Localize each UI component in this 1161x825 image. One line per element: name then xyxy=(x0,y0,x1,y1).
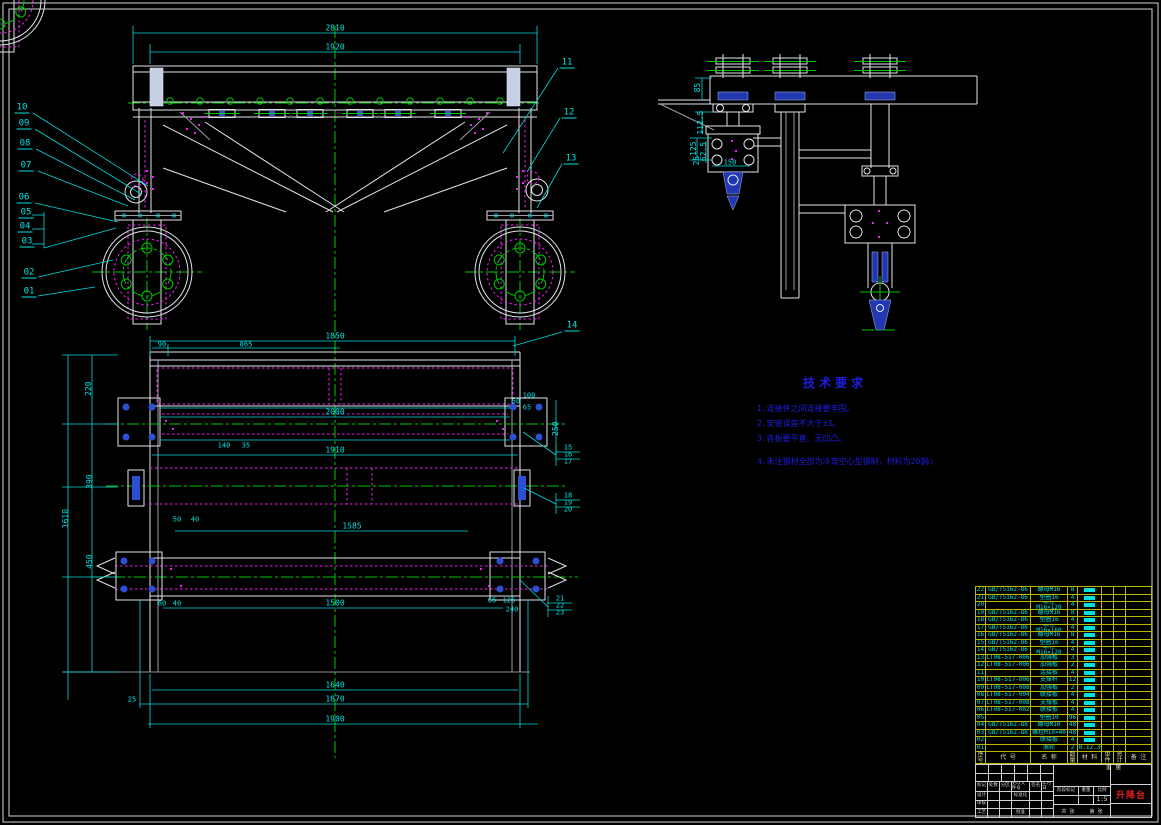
bom-cell-name: 螺栓M16×120 xyxy=(1031,602,1068,610)
bom-cell-code: LT08-517-004 xyxy=(986,692,1031,700)
bom-header-weight: 单件 总计 重 量 xyxy=(1102,752,1126,763)
dimension-pv_50r: 50 xyxy=(512,398,520,406)
bom-cell-code: GB/T5162-86 xyxy=(986,595,1031,603)
bom-cell-name: 垫圈16 xyxy=(1031,640,1068,648)
callout-co_13: 13 xyxy=(564,155,579,165)
bom-header-remark: 备 注 xyxy=(1126,752,1151,763)
bom-cell-unit xyxy=(1102,700,1114,708)
dimension-pv_100: 100 xyxy=(523,392,536,400)
title-block-middle: 阶段标记 重量 比例 1:5 共 张 第 张 xyxy=(1054,765,1111,817)
tb-standard-label: 标准化 xyxy=(1012,792,1030,800)
bom-cell-material xyxy=(1078,625,1102,633)
callout-co_08: 08 xyxy=(18,140,33,150)
bom-cell-material xyxy=(1078,632,1102,640)
bom-cell-name: 联接板 xyxy=(1031,737,1068,745)
bom-cell-no: 05 xyxy=(976,715,986,723)
callout-co_14: 14 xyxy=(565,322,580,332)
bom-row: 20螺栓M16×1204 xyxy=(976,602,1151,610)
bom-cell-no: 06 xyxy=(976,707,986,715)
bom-cell-code: GB/T5162-88 xyxy=(986,722,1031,730)
dimension-fv_dim_1920: 1920 xyxy=(325,44,344,52)
dimension-pv_65r: 65 xyxy=(488,597,496,605)
bom-cell-no: 09 xyxy=(976,685,986,693)
bom-cell-qty: 4 xyxy=(1068,692,1078,700)
bom-cell-material xyxy=(1078,670,1102,678)
tech-requirement-line: 4.未注钢材全部为冷弯空心型钢制，材料为20钢○ xyxy=(757,454,992,469)
dimension-pv_240: 240 xyxy=(506,606,519,614)
bom-cell-qty: 4 xyxy=(1068,625,1078,633)
bom-cell-qty: 8 xyxy=(1068,610,1078,618)
bom-cell-code: LT08-517-008 xyxy=(986,685,1031,693)
bom-cell-qty: 48 xyxy=(1068,722,1078,730)
material-highlight xyxy=(1084,633,1095,637)
bom-cell-no: 20 xyxy=(976,602,986,610)
bom-row: 06LT08-517-002联接板4 xyxy=(976,707,1151,715)
tech-requirement-line: 2.安装误差不大于±3。 xyxy=(757,416,992,431)
bom-cell-remark xyxy=(1126,730,1151,738)
bom-cell-qty: 4 xyxy=(1068,640,1078,648)
tb-drawing-number-cell xyxy=(1111,804,1151,817)
bom-cell-total xyxy=(1114,640,1126,648)
tb-company-cell xyxy=(1111,765,1151,785)
bom-cell-qty: 4 xyxy=(1068,602,1078,610)
bom-cell-code: LT08-517-008 xyxy=(986,700,1031,708)
dimension-pv_1610: 1610 xyxy=(62,509,70,528)
bom-cell-no: 11 xyxy=(976,670,986,678)
bom-cell-total xyxy=(1114,700,1126,708)
plan-view xyxy=(62,332,580,758)
bom-cell-total xyxy=(1114,610,1126,618)
dimension-pv_1910: 1910 xyxy=(325,447,344,455)
tb-drawing-title: 升降台 xyxy=(1111,785,1151,804)
bom-row: 04GB/T5162-88螺母M1048 xyxy=(976,722,1151,730)
callout-co_01: 01 xyxy=(22,288,37,298)
bom-cell-total xyxy=(1114,730,1126,738)
dimension-sv_150: 150 xyxy=(724,159,737,167)
bom-cell-unit xyxy=(1102,587,1114,595)
bom-cell-code: GB/T5162-86 xyxy=(986,617,1031,625)
bom-cell-name: 螺母M16 xyxy=(1031,632,1068,640)
bom-cell-qty: 48 xyxy=(1068,730,1078,738)
bom-row: 11连接板4 xyxy=(976,670,1151,678)
bom-cell-unit xyxy=(1102,625,1114,633)
material-highlight xyxy=(1084,731,1095,735)
bom-cell-qty: 4 xyxy=(1068,617,1078,625)
tb-stage-mark-cell xyxy=(1054,765,1110,787)
bom-cell-name: 连接板 xyxy=(1031,670,1068,678)
bom-header-unit: 单件 xyxy=(1102,752,1114,764)
dimension-pv_140: 140 xyxy=(218,442,231,450)
bom-cell-qty: 4 xyxy=(1068,595,1078,603)
dimension-pv_90: 90 xyxy=(158,341,166,349)
bom-cell-remark xyxy=(1126,647,1151,655)
bom-cell-qty: 4 xyxy=(1068,737,1078,745)
bom-cell-unit xyxy=(1102,692,1114,700)
bom-cell-remark xyxy=(1126,707,1151,715)
bom-header-no: 序号 xyxy=(976,752,986,763)
material-highlight xyxy=(1084,588,1095,592)
material-highlight xyxy=(1084,708,1095,712)
bom-cell-code xyxy=(986,737,1031,745)
bom-cell-unit xyxy=(1102,595,1114,603)
bom-row: 18GB/T5162-86垫圈164 xyxy=(976,617,1151,625)
bom-cell-code: LT08-517-006 xyxy=(986,662,1031,670)
bom-cell-name: 螺母M16 xyxy=(1031,587,1068,595)
bom-row: 12LT08-517-006加强板2 xyxy=(976,662,1151,670)
bom-cell-qty: 2 xyxy=(1068,685,1078,693)
tb-design-label: 设计 xyxy=(976,792,988,800)
material-highlight xyxy=(1084,693,1095,697)
material-highlight xyxy=(1084,716,1095,720)
dimension-pv_250: 250 xyxy=(552,421,560,435)
dimension-pv_220: 220 xyxy=(85,381,93,395)
tb-sign-label: 签名 xyxy=(1030,782,1042,791)
bom-cell-code: LT08-517-006 xyxy=(986,677,1031,685)
tb-change-label: 更改文件号 xyxy=(1012,782,1030,791)
bom-cell-name: 螺栓M16×160 xyxy=(1031,625,1068,633)
tb-mark-label: 标记 xyxy=(976,782,988,791)
tb-process-label: 工艺 xyxy=(976,809,988,817)
bom-row: 03GB/T5162-88螺栓M10×4048 xyxy=(976,730,1151,738)
material-highlight xyxy=(1084,663,1095,667)
dimension-pv_125r: 125 xyxy=(503,597,516,605)
bom-cell-name: 支撑板 xyxy=(1031,700,1068,708)
tb-count-label: 处数 xyxy=(988,782,1000,791)
bom-cell-remark xyxy=(1126,692,1151,700)
bom-row: 10LT08-517-006支撑杆12 xyxy=(976,677,1151,685)
bom-cell-unit xyxy=(1102,602,1114,610)
bom-cell-material xyxy=(1078,655,1102,663)
bom-cell-remark xyxy=(1126,670,1151,678)
dimension-pv_1900: 1900 xyxy=(325,716,344,724)
bom-cell-no: 16 xyxy=(976,632,986,640)
bom-cell-qty: 4 xyxy=(1068,670,1078,678)
tb-date-label: 年月日 xyxy=(1042,782,1053,791)
bom-table: 22GB/T5162-86螺母M16821GB/T5162-86垫圈16420螺… xyxy=(975,586,1152,753)
bom-row: 19GB/T5162-86螺母M168 xyxy=(976,610,1151,618)
tb-scale-label: 比例 xyxy=(1094,787,1110,795)
callout-co_09: 09 xyxy=(17,120,32,130)
dimension-pv_1585: 1585 xyxy=(342,523,361,531)
dimension-pv_25: 25 xyxy=(128,696,136,704)
bom-cell-name: 垫圈10 xyxy=(1031,715,1068,723)
bom-cell-no: 21 xyxy=(976,595,986,603)
bom-cell-no: 04 xyxy=(976,722,986,730)
bom-cell-remark xyxy=(1126,617,1151,625)
bom-row: 15GB/T5162-86垫圈164 xyxy=(976,640,1151,648)
bom-cell-name: 垫圈16 xyxy=(1031,617,1068,625)
bom-cell-total xyxy=(1114,715,1126,723)
front-view xyxy=(0,0,575,342)
bom-cell-qty: 2 xyxy=(1068,662,1078,670)
bom-cell-code: GB/T5162-86 xyxy=(986,610,1031,618)
bom-cell-total xyxy=(1114,655,1126,663)
bom-cell-total xyxy=(1114,685,1126,693)
tb-weight-label: 重量 xyxy=(1079,787,1094,795)
material-highlight xyxy=(1084,648,1095,652)
bom-row: 16GB/T5162-86螺母M168 xyxy=(976,632,1151,640)
bom-row: 21GB/T5162-86垫圈164 xyxy=(976,595,1151,603)
bom-cell-qty: 12 xyxy=(1068,677,1078,685)
dimension-pv_40b: 40 xyxy=(173,600,181,608)
bom-cell-qty: 4 xyxy=(1068,707,1078,715)
bom-header-row: 序号 代 号 名 称 数量 材 料 单件 总计 重 量 备 注 xyxy=(975,751,1152,764)
bom-row: 08LT08-517-004联接板4 xyxy=(976,692,1151,700)
title-block-revision-area: 标记 处数 分区 更改文件号 签名 年月日 设计 标准化 审核 工艺 批准 xyxy=(976,765,1054,817)
bom-cell-code xyxy=(986,670,1031,678)
bom-cell-remark xyxy=(1126,625,1151,633)
bom-cell-unit xyxy=(1102,640,1114,648)
bom-cell-remark xyxy=(1126,595,1151,603)
material-highlight xyxy=(1084,678,1095,682)
bom-cell-unit xyxy=(1102,715,1114,723)
bom-cell-remark xyxy=(1126,722,1151,730)
bom-header-material: 材 料 xyxy=(1078,752,1102,763)
bom-cell-code: LT08-517-006 xyxy=(986,655,1031,663)
bom-cell-code xyxy=(986,715,1031,723)
dimension-sv_112_5: 112.5 xyxy=(697,111,705,135)
bom-cell-unit xyxy=(1102,632,1114,640)
dimension-co_23: 23 xyxy=(556,609,564,617)
dimension-pv_50: 50 xyxy=(173,516,181,524)
bom-header-code: 代 号 xyxy=(986,752,1031,763)
bom-row: 07LT08-517-008支撑板4 xyxy=(976,700,1151,708)
bom-cell-material xyxy=(1078,595,1102,603)
callout-co_12: 12 xyxy=(562,109,577,119)
callout-co_10: 10 xyxy=(15,104,30,114)
bom-header-total: 总计 xyxy=(1114,752,1125,764)
bom-cell-code: GB/T5162-88 xyxy=(986,730,1031,738)
bom-row: 13LT08-517-006加强板3 xyxy=(976,655,1151,663)
bom-cell-total xyxy=(1114,617,1126,625)
bom-cell-code: GB/T5162-86 xyxy=(986,640,1031,648)
dimension-co_17: 17 xyxy=(564,458,572,466)
bom-cell-name: 螺母M10 xyxy=(1031,722,1068,730)
dimension-pv_865: 865 xyxy=(240,341,253,349)
material-highlight xyxy=(1084,686,1095,690)
bom-cell-total xyxy=(1114,692,1126,700)
tb-scale-value: 1:5 xyxy=(1094,796,1110,804)
bom-cell-remark xyxy=(1126,610,1151,618)
bom-cell-qty: 4 xyxy=(1068,700,1078,708)
bom-cell-name: 螺栓M16×120 xyxy=(1031,647,1068,655)
tech-requirement-line: 3.各板要平直、无凹凸。 xyxy=(757,431,992,446)
dimension-pv_1640: 1640 xyxy=(325,682,344,690)
bom-row: 14GB/T5162-86螺栓M16×1204 xyxy=(976,647,1151,655)
bom-cell-remark xyxy=(1126,587,1151,595)
bom-cell-no: 12 xyxy=(976,662,986,670)
bom-cell-name: 支撑杆 xyxy=(1031,677,1068,685)
bom-cell-remark xyxy=(1126,632,1151,640)
callout-co_11: 11 xyxy=(560,59,575,69)
material-highlight xyxy=(1084,738,1095,742)
bom-cell-no: 19 xyxy=(976,610,986,618)
bom-cell-total xyxy=(1114,595,1126,603)
bom-cell-remark xyxy=(1126,700,1151,708)
bom-cell-name: 螺母M16 xyxy=(1031,610,1068,618)
bom-cell-remark xyxy=(1126,685,1151,693)
bom-cell-material xyxy=(1078,587,1102,595)
bom-cell-total xyxy=(1114,625,1126,633)
dimension-pv_1850: 1850 xyxy=(325,333,344,341)
bom-cell-code: GB/T5162-86 xyxy=(986,587,1031,595)
material-highlight xyxy=(1084,641,1095,645)
material-highlight xyxy=(1084,603,1095,607)
bom-cell-unit xyxy=(1102,737,1114,745)
bom-cell-remark xyxy=(1126,602,1151,610)
technical-requirements: 技术要求 1.连接件之间连接要牢固。 2.安装误差不大于±3。 3.各板要平直、… xyxy=(757,374,992,469)
bom-cell-code xyxy=(986,602,1031,610)
bom-cell-name: 垫圈16 xyxy=(1031,595,1068,603)
bom-cell-total xyxy=(1114,587,1126,595)
dimension-sv_25: 25 xyxy=(693,156,701,166)
bom-cell-remark xyxy=(1126,655,1151,663)
dimension-pv_1870: 1870 xyxy=(325,696,344,704)
material-highlight xyxy=(1084,671,1095,675)
title-block-right: 升降台 xyxy=(1111,765,1151,817)
material-highlight xyxy=(1084,618,1095,622)
dimension-sv_85: 85 xyxy=(694,83,702,93)
bom-cell-code: GB/T5162-86 xyxy=(986,632,1031,640)
bom-cell-material xyxy=(1078,707,1102,715)
bom-cell-total xyxy=(1114,737,1126,745)
bom-cell-material xyxy=(1078,737,1102,745)
bom-cell-remark xyxy=(1126,715,1151,723)
bom-cell-unit xyxy=(1102,707,1114,715)
bom-cell-code: LT08-517-002 xyxy=(986,707,1031,715)
bom-cell-total xyxy=(1114,707,1126,715)
bom-cell-material xyxy=(1078,617,1102,625)
material-highlight xyxy=(1084,656,1095,660)
bom-cell-unit xyxy=(1102,670,1114,678)
dimension-pv_40: 40 xyxy=(191,516,199,524)
bom-cell-material xyxy=(1078,677,1102,685)
title-block: 标记 处数 分区 更改文件号 签名 年月日 设计 标准化 审核 工艺 批准 阶段… xyxy=(975,764,1152,818)
bom-cell-qty: 8 xyxy=(1068,587,1078,595)
bom-cell-name: 联接板 xyxy=(1031,707,1068,715)
tb-stage-label: 阶段标记 xyxy=(1054,787,1079,795)
bom-cell-qty: 4 xyxy=(1068,647,1078,655)
bom-cell-no: 17 xyxy=(976,625,986,633)
tb-zone-label: 分区 xyxy=(1000,782,1012,791)
bom-cell-name: 加强板 xyxy=(1031,685,1068,693)
bom-cell-remark xyxy=(1126,640,1151,648)
bom-cell-no: 02 xyxy=(976,737,986,745)
bom-row: 09LT08-517-008加强板2 xyxy=(976,685,1151,693)
bom-cell-material xyxy=(1078,662,1102,670)
bom-cell-unit xyxy=(1102,662,1114,670)
dimension-pv_450: 450 xyxy=(86,554,94,568)
callout-co_04: 04 xyxy=(18,223,33,233)
bom-cell-material xyxy=(1078,610,1102,618)
bom-cell-unit xyxy=(1102,610,1114,618)
bom-cell-no: 07 xyxy=(976,700,986,708)
dimension-pv_60: 60 xyxy=(158,600,166,608)
material-highlight xyxy=(1084,611,1095,615)
dimension-pv_65: 65 xyxy=(523,404,531,412)
dimension-pv_2000: 2000 xyxy=(325,409,344,417)
bom-row: 02联接板4 xyxy=(976,737,1151,745)
bom-cell-material xyxy=(1078,715,1102,723)
tb-sheet-number: 第 张 xyxy=(1089,808,1102,815)
material-highlight xyxy=(1084,701,1095,705)
dimension-fv_dim_2810: 2810 xyxy=(325,25,344,33)
bom-cell-qty: 8 xyxy=(1068,632,1078,640)
tech-requirements-title: 技术要求 xyxy=(803,374,992,391)
bom-row: 22GB/T5162-86螺母M168 xyxy=(976,587,1151,595)
dimension-pv_35: 35 xyxy=(242,442,250,450)
bom-cell-no: 15 xyxy=(976,640,986,648)
bom-header-name: 名 称 xyxy=(1031,752,1068,763)
tb-sheet-count: 共 张 xyxy=(1061,808,1074,815)
bom-cell-code: GB/T5162-86 xyxy=(986,647,1031,655)
bom-cell-no: 14 xyxy=(976,647,986,655)
dimension-co_20: 20 xyxy=(564,506,572,514)
bom-cell-qty: 3 xyxy=(1068,655,1078,663)
callout-co_03: 03 xyxy=(20,238,35,248)
bom-cell-no: 22 xyxy=(976,587,986,595)
bom-cell-qty: 96 xyxy=(1068,715,1078,723)
bom-cell-material xyxy=(1078,647,1102,655)
bom-cell-no: 03 xyxy=(976,730,986,738)
bom-row: 05垫圈1096 xyxy=(976,715,1151,723)
callout-co_06: 06 xyxy=(17,194,32,204)
material-highlight xyxy=(1084,723,1095,727)
bom-cell-remark xyxy=(1126,662,1151,670)
bom-row: 17GB/T5162-86螺栓M16×1604 xyxy=(976,625,1151,633)
bom-cell-unit xyxy=(1102,647,1114,655)
bom-cell-no: 18 xyxy=(976,617,986,625)
bom-cell-name: 加强板 xyxy=(1031,655,1068,663)
bom-cell-total xyxy=(1114,632,1126,640)
callout-co_07: 07 xyxy=(19,162,34,172)
bom-cell-material xyxy=(1078,685,1102,693)
bom-cell-unit xyxy=(1102,617,1114,625)
bom-cell-unit xyxy=(1102,655,1114,663)
bom-cell-unit xyxy=(1102,677,1114,685)
material-highlight xyxy=(1084,596,1095,600)
tb-check-label: 审核 xyxy=(976,801,988,809)
bom-cell-no: 08 xyxy=(976,692,986,700)
bom-cell-material xyxy=(1078,640,1102,648)
bom-cell-code: GB/T5162-86 xyxy=(986,625,1031,633)
cad-drawing-sheet: 2810192010090807060504030201111213148511… xyxy=(0,0,1161,825)
bom-cell-no: 10 xyxy=(976,677,986,685)
bom-cell-remark xyxy=(1126,677,1151,685)
bom-cell-unit xyxy=(1102,722,1114,730)
bom-cell-total xyxy=(1114,677,1126,685)
bom-cell-total xyxy=(1114,647,1126,655)
bom-cell-no: 13 xyxy=(976,655,986,663)
bom-cell-name: 螺栓M10×40 xyxy=(1031,730,1068,738)
bom-cell-unit xyxy=(1102,685,1114,693)
dimension-sv_62_5: 62.5 xyxy=(700,142,708,161)
bom-cell-total xyxy=(1114,602,1126,610)
bom-cell-material xyxy=(1078,700,1102,708)
material-highlight xyxy=(1084,626,1095,630)
bom-cell-material xyxy=(1078,692,1102,700)
callout-co_05: 05 xyxy=(19,209,34,219)
bom-cell-total xyxy=(1114,670,1126,678)
bom-cell-total xyxy=(1114,662,1126,670)
bom-cell-material xyxy=(1078,602,1102,610)
bom-cell-name: 联接板 xyxy=(1031,692,1068,700)
tech-requirement-line: 1.连接件之间连接要牢固。 xyxy=(757,401,992,416)
dimension-pv_1500: 1500 xyxy=(325,600,344,608)
bom-cell-name: 加强板 xyxy=(1031,662,1068,670)
tb-approve-label: 批准 xyxy=(1012,809,1030,817)
bom-cell-total xyxy=(1114,722,1126,730)
